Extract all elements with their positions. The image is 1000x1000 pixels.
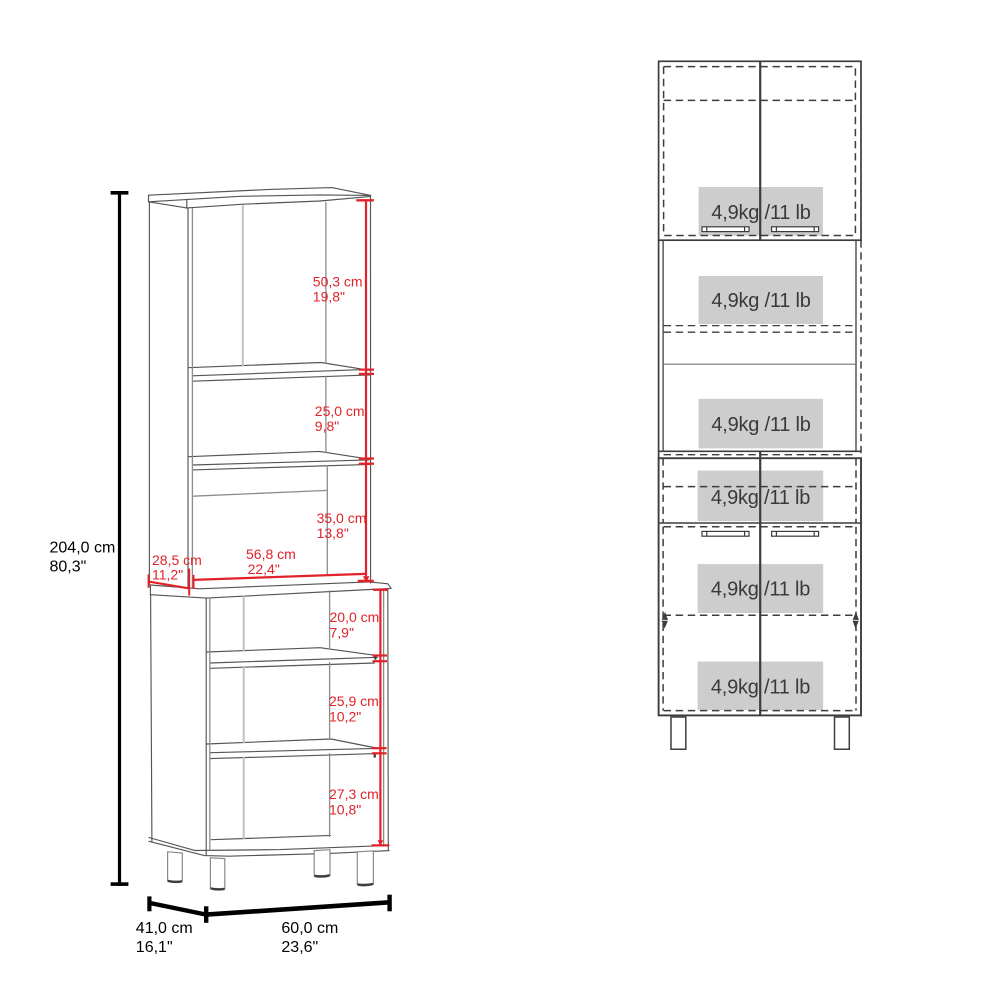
svg-text:80,3": 80,3" [50,559,87,576]
svg-text:56,8 cm: 56,8 cm [246,546,296,562]
svg-text:25,9 cm: 25,9 cm [329,693,379,709]
svg-text:35,0 cm: 35,0 cm [317,510,367,526]
svg-text:4,9kg /11 lb: 4,9kg /11 lb [711,579,810,601]
svg-text:4,9kg /11 lb: 4,9kg /11 lb [711,202,810,224]
svg-text:25,0 cm: 25,0 cm [315,403,365,419]
svg-text:60,0 cm: 60,0 cm [281,920,338,937]
svg-text:4,9kg /11 lb: 4,9kg /11 lb [711,677,810,699]
svg-text:27,3 cm: 27,3 cm [329,786,379,802]
svg-text:7,9": 7,9" [330,624,354,640]
svg-text:10,8": 10,8" [329,801,361,817]
svg-text:4,9kg /11 lb: 4,9kg /11 lb [711,290,810,312]
svg-text:11,2": 11,2" [152,567,183,583]
svg-text:28,5 cm: 28,5 cm [152,552,202,568]
svg-text:10,2": 10,2" [329,708,361,724]
svg-text:19,8": 19,8" [313,288,345,304]
svg-text:4,9kg /11 lb: 4,9kg /11 lb [711,487,810,509]
svg-text:16,1": 16,1" [136,939,173,956]
svg-text:41,0 cm: 41,0 cm [136,920,193,937]
svg-text:204,0 cm: 204,0 cm [50,540,116,557]
svg-text:4,9kg /11 lb: 4,9kg /11 lb [711,414,810,436]
svg-text:13,8": 13,8" [317,525,349,541]
svg-text:23,6": 23,6" [281,939,318,956]
svg-text:9,8": 9,8" [315,418,339,434]
svg-text:20,0 cm: 20,0 cm [330,609,380,625]
svg-text:22,4": 22,4" [248,561,280,577]
svg-text:50,3 cm: 50,3 cm [313,274,363,290]
